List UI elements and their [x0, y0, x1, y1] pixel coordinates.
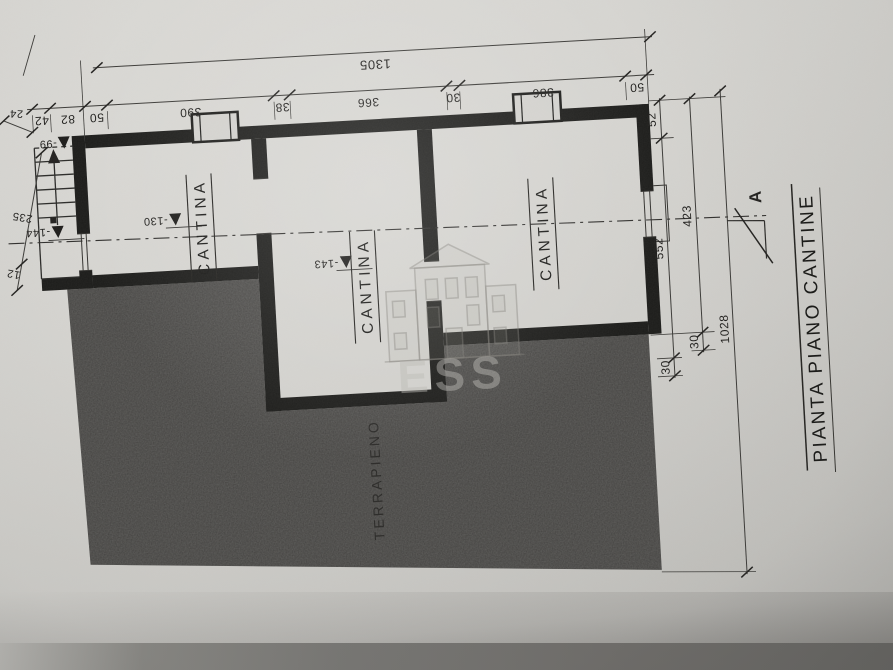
scanned-floor-plan-photo: TERRAPIENO — [0, 0, 893, 670]
floor-plan-drawing: TERRAPIENO — [0, 0, 893, 670]
photo-grain-overlay — [0, 0, 893, 670]
